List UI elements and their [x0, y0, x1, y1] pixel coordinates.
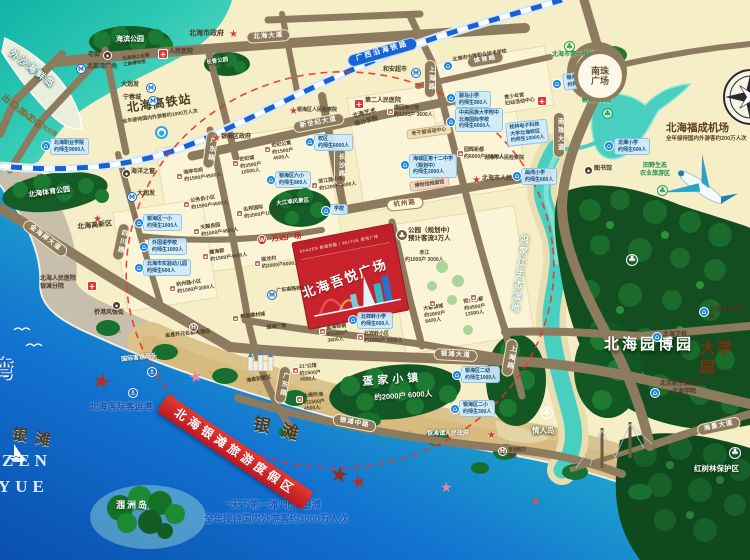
airport-title: 北海福成机场 [666, 122, 729, 135]
school-eryou: 银海区二幼 约师生1000人 [461, 366, 500, 383]
poi-ningchuncheng: 宁春城 [123, 95, 141, 103]
metro-icon: M [148, 96, 158, 106]
school-icon: ⌂ [452, 370, 462, 380]
gov-star-icon: ★ [93, 214, 102, 225]
residential-icon: ▪ [202, 253, 209, 260]
school-youeryuan: 北海市实验幼儿园 约师生600人 [143, 259, 191, 276]
school-icon: ⌂ [446, 93, 456, 103]
residential-icon: ▪ [176, 173, 183, 180]
gov-star-icon: ★ [487, 430, 496, 441]
airport-subtitle: 全年接待国内外游客约200万人次 [666, 136, 747, 143]
residential-icon: ▪ [357, 334, 364, 341]
school-icon: ⌂ [650, 388, 660, 398]
residential-icon: ▪ [387, 108, 394, 115]
residential-icon: ▪ [292, 367, 299, 374]
shop-icon: ◆ [122, 169, 131, 178]
poi-nanzhu-plaza: 南珠 广场 [574, 50, 626, 102]
poi-hean-chaoshi: 和安超市 [383, 67, 407, 75]
hotel-icon: H [189, 323, 198, 332]
island-weizhou: 涠洲岛 [116, 500, 149, 511]
residential-icon: ▪ [169, 285, 176, 292]
res-shijicheng: 世纪城 约3500户 10500人 [239, 154, 263, 176]
school-icon: ⌂ [512, 171, 522, 181]
hotel-icon: H [498, 447, 507, 456]
residential-icon: ▪ [296, 396, 303, 403]
school-erxiao: 银海区二小 约师生300人 [459, 400, 495, 417]
residential-icon: ▪ [311, 182, 318, 189]
residential-icon: ▪ [264, 146, 271, 153]
metro-icon: M [411, 68, 421, 78]
park-tree-icon: ♣ [396, 229, 408, 241]
slogan-line2: 全年接待国内外游客约3000万人次 [204, 514, 349, 526]
gov-star-icon: ★ [229, 29, 238, 40]
residential-icon: ▪ [254, 260, 261, 267]
school-icon: ⌂ [699, 307, 709, 317]
hospital-icon: + [158, 49, 168, 59]
reserve-hongshulin: 红树林保护区 [694, 464, 739, 473]
school-icon: ⌂ [443, 61, 453, 71]
poi-jianchayuan: 银海区人民检察院 [297, 107, 337, 113]
res-beixiangling: 北祥岭小区 约1000户 3000人 [364, 331, 403, 344]
residential-icon: ▪ [183, 201, 190, 208]
school-weixiao: 北海卫校 [663, 332, 687, 340]
school-yixiao: 银海区一小 约师生1000人 [143, 214, 182, 231]
anchor-icon: ⚓ [147, 367, 157, 377]
school-icon: ⌂ [41, 141, 51, 151]
school-minda-fuzhong: 中央民族大学附中 北海国际学校 约师生6000人 [455, 108, 503, 132]
school-icon: ⌂ [652, 332, 662, 342]
school-xiaoqu: 校区 约师生6000人 [314, 134, 353, 151]
school-icon: ⌂ [552, 79, 562, 89]
island-qingren: 情人岛 [532, 426, 555, 435]
school-icon: ⌂ [604, 141, 614, 151]
gov-star-icon: ★ [289, 106, 298, 117]
school-guilin-dianzi: 桂林电子科技 大学北海校区 约师生10000人 [505, 119, 549, 147]
school-icon: ⌂ [348, 315, 358, 325]
poi-yintanzhen-gov: 银滩镇人民政府 [427, 431, 469, 439]
anchor-icon: ⚓ [128, 388, 138, 398]
park-haibin: 海滨公园 [116, 36, 144, 45]
res-chijiang: 赤江 约1000户 3000人 [405, 250, 444, 263]
svg-text:★: ★ [440, 479, 453, 495]
park-tree-icon: ♣ [729, 447, 741, 459]
poi-keyungang: 北海国际客运港 [90, 402, 153, 412]
school-icon: ⌂ [450, 404, 460, 414]
road-label-nanzhu-dadao: 南珠大道 [553, 112, 565, 158]
residential-icon: ▪ [236, 210, 243, 217]
res-21-gongguan: 21°公馆 约1500户 4500人 [299, 363, 321, 384]
watermark-wan: 湾 [0, 356, 13, 384]
metro-icon: M [267, 290, 277, 300]
watermark-yue: YUE [0, 476, 49, 497]
svg-text:★: ★ [187, 368, 204, 387]
school-beixiangling: 北祥岭小学 约师生600人 [357, 312, 393, 329]
residential-icon: ▪ [457, 150, 464, 157]
residential-icon: ▪ [470, 294, 477, 301]
eco-tree-icon: ♣ [564, 41, 575, 52]
hospital-icon: + [87, 281, 97, 291]
wanda-icon: W [257, 235, 267, 245]
school-longtan: 龙潭小学 约师生600人 [614, 138, 650, 155]
school-xuexiao: 学校 [330, 204, 348, 215]
beihai-wuyue-location-map: ★ ★ ★ ★ ★ ★ ★ [0, 0, 750, 560]
school-icon: ⌂ [139, 242, 149, 252]
school-shierzhong: 海城区第十二中学 （规划中） 约师生2000人 [409, 154, 457, 178]
poi-renmin-hospital: 人民医院 [169, 49, 193, 57]
res-jingyuanhai: 璟园海公馆 约1200户 3600人 [394, 105, 433, 118]
gov-star-icon: ★ [472, 175, 481, 186]
school-icon: ⌂ [134, 263, 144, 273]
poi-laojie: 老街 [88, 52, 100, 60]
gov-star-icon: ★ [212, 133, 221, 144]
shop-icon: ◆ [112, 301, 121, 310]
map-artwork: ★ ★ ★ ★ ★ ★ ★ [0, 0, 750, 560]
eco-tree-icon: ♣ [657, 185, 668, 196]
metro-icon: M [76, 64, 86, 74]
residential-icon: ▪ [429, 300, 436, 307]
school-junma: 骏马小学 约师生800人 [455, 91, 491, 108]
park-planned: 公园（规划中） 预计客流3万人 [408, 227, 454, 243]
school-icon: ⌂ [305, 137, 315, 147]
poi-shizhengfu: 北海市政府 [189, 30, 224, 39]
poi-qiaogang: 侨港风情街 [94, 310, 124, 318]
poi-haiyangzhichuang: 海洋之窗 [131, 169, 155, 177]
poi-shi-jianchayuan: 北海市人民检察院 [484, 155, 524, 161]
eco-tianye: 田野生态 农业旅游区 [640, 163, 670, 178]
zone-daxueyuan: 大学园 [700, 340, 750, 378]
residential-icon: ▪ [232, 160, 239, 167]
school-beihang: 北京航空航天大学 北海学院 [660, 381, 708, 396]
poi-beibuwan-square: 北部湾广场 [87, 64, 117, 72]
park-tree-icon: ♣ [541, 407, 553, 419]
metro-icon: M [127, 192, 137, 202]
school-icon: ⌂ [266, 175, 276, 185]
school-liuxiao: 银海区六小 约师生800人 [275, 171, 311, 188]
hospital-icon: + [537, 96, 547, 106]
res-datang-tinghai: 大唐听海 约1500户 4500人 [303, 392, 325, 413]
residential-icon: ▪ [232, 315, 239, 322]
shop-icon: ◆ [584, 166, 593, 175]
poi-huangguan-hotel: 皇冠假日 酒店 [508, 447, 526, 458]
road-label-shanghailu-north: 上海路 [424, 60, 436, 98]
hsr-station-icon: ● [155, 126, 168, 139]
school-shiwei-dangxiao: 北海市市委党校 [709, 307, 750, 322]
residential-icon: ▪ [319, 328, 326, 335]
watermark-zen: ZEN [2, 450, 52, 471]
park-tree-icon: ♣ [626, 254, 638, 266]
school-icon: ⌂ [446, 117, 456, 127]
road-label-yintan-dadao: 银滩大道 [433, 348, 478, 362]
school-icon: ⌂ [134, 218, 144, 228]
poi-darunfa-1: 大润发 [121, 82, 139, 90]
school-quwan: 曲湾小学 约师生600人 [521, 168, 557, 185]
residential-icon: ▪ [193, 228, 200, 235]
poi-yintan-hospital: 北海人民医院 银滩分院 [40, 276, 76, 291]
weizhou-island-shape [90, 485, 206, 549]
school-icon: ⌂ [321, 206, 331, 216]
res-shiji-gongyu: 世纪公寓 约1500户 4500人 [271, 140, 295, 162]
hospital-icon: + [354, 99, 364, 109]
poi-darunfa-2: 大润发 [137, 191, 155, 199]
poi-yinhai-gov: 银海区政府 [221, 134, 251, 142]
poi-tushuguan: 图书馆 [594, 166, 612, 174]
res-jinhai-zonglv: 金海棕榈 约1200户 3600人 [326, 323, 349, 345]
school-waiguoyu: 外国语学校 约师生1000人 [148, 238, 187, 255]
school-icon: ⌂ [400, 160, 410, 170]
shop-icon: ◆ [103, 51, 112, 60]
eco-tree-icon: ♣ [602, 108, 613, 119]
school-zhiye-xueyuan: 北海职业学院 约师生9000人 [50, 138, 89, 155]
metro-icon: M [146, 83, 156, 93]
svg-text:★: ★ [530, 494, 541, 508]
